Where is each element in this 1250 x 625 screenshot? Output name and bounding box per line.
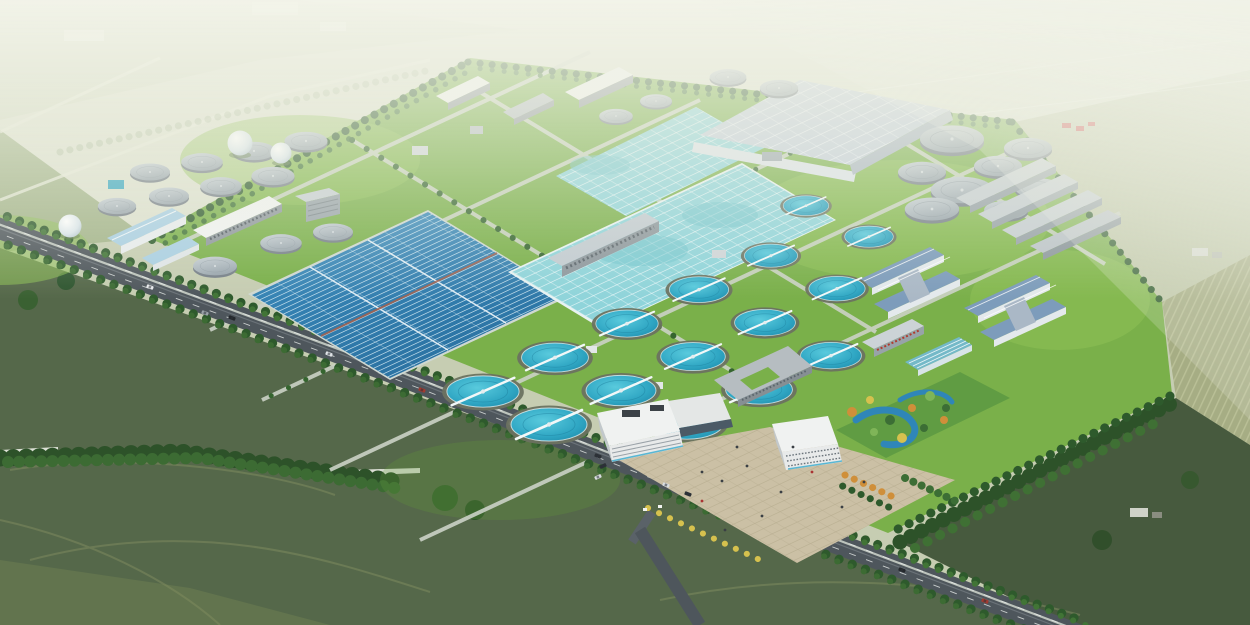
clarifier-tank bbox=[442, 373, 524, 410]
clarifier-tank bbox=[656, 340, 729, 373]
clarifier-tank bbox=[731, 307, 800, 338]
aerial-rendering-canvas bbox=[0, 0, 1250, 625]
clarifier-tank bbox=[592, 308, 663, 340]
clarifier-tank bbox=[517, 341, 593, 375]
clarifier-tank bbox=[506, 406, 592, 445]
treatment-plant-aerial-scene bbox=[0, 0, 1250, 625]
